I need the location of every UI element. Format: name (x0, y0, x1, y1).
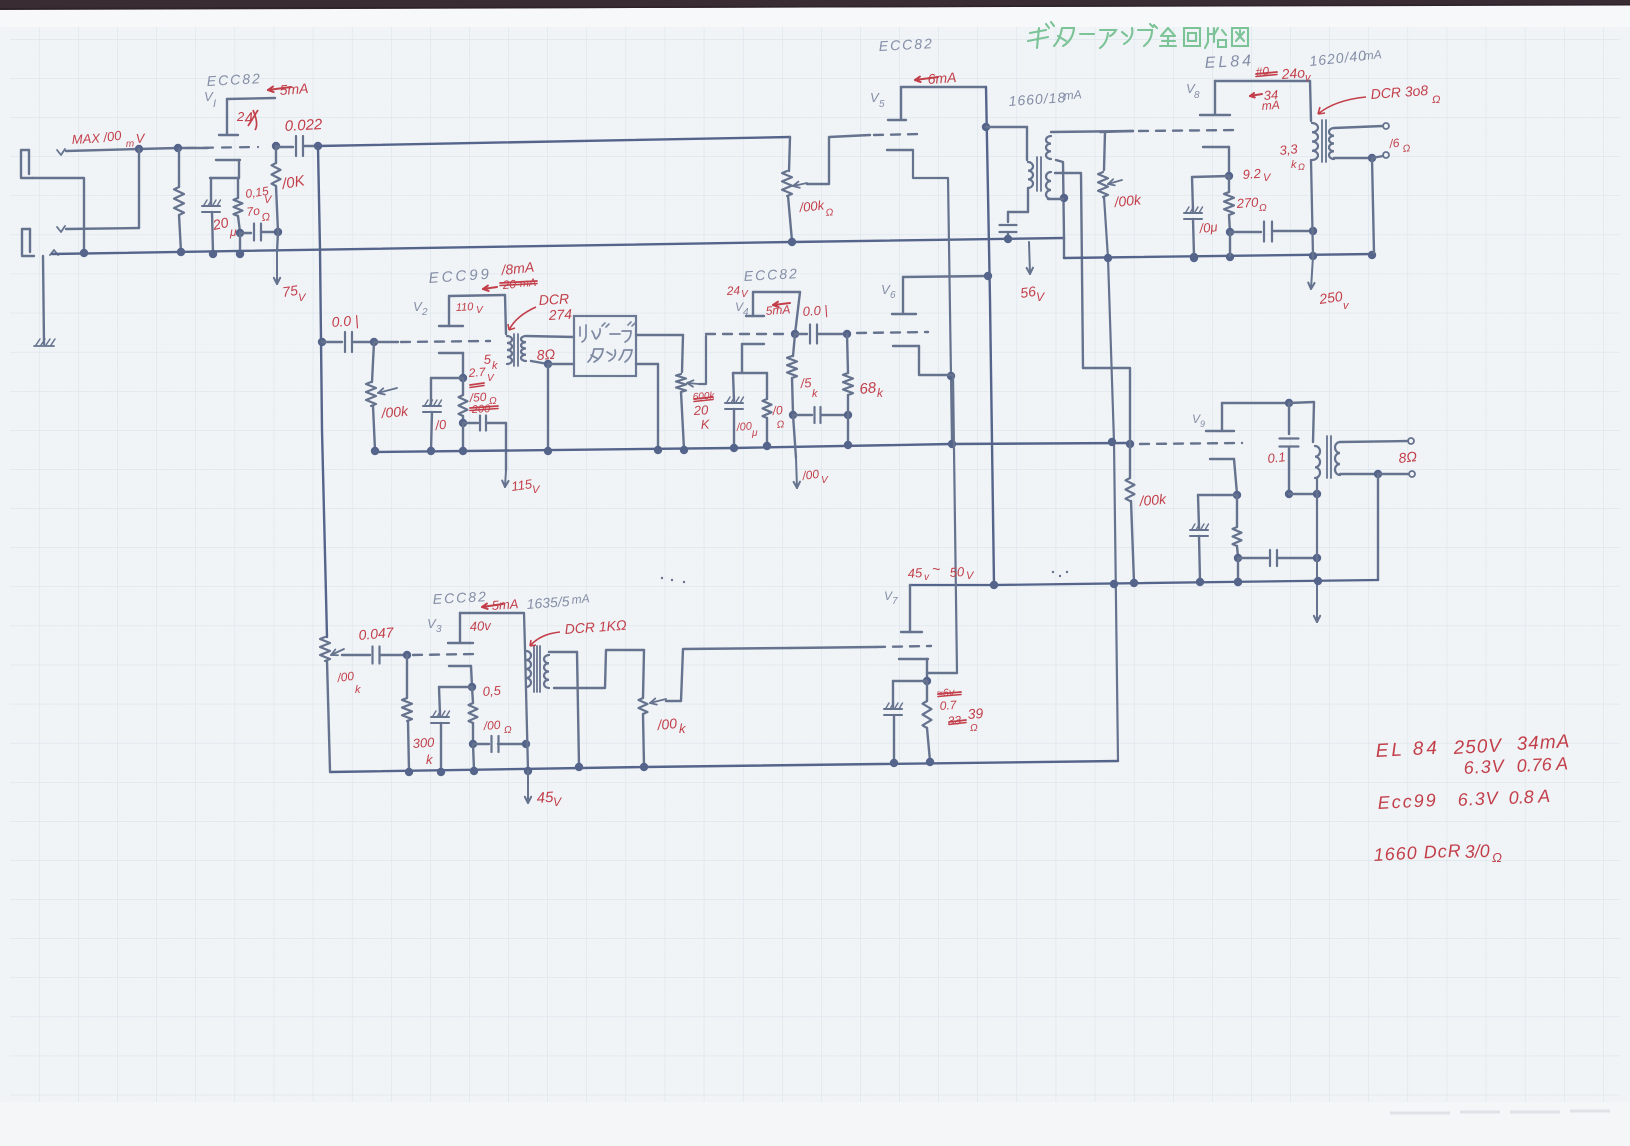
svg-text:7: 7 (892, 596, 898, 607)
svg-text:7o: 7o (246, 204, 261, 219)
svg-text:k: k (355, 684, 361, 696)
svg-text:0.1: 0.1 (1267, 449, 1287, 466)
svg-text:Ecc99: Ecc99 (1377, 790, 1438, 813)
svg-text:3: 3 (436, 624, 442, 635)
svg-text:2: 2 (421, 307, 428, 318)
svg-text:EL 84: EL 84 (1375, 738, 1440, 762)
svg-text:0.76 A: 0.76 A (1516, 753, 1568, 776)
svg-text:k: k (812, 388, 818, 400)
svg-text:0.0 |: 0.0 | (331, 312, 359, 330)
svg-text:56: 56 (1019, 283, 1037, 301)
svg-text:0.0 |: 0.0 | (802, 302, 828, 319)
svg-text:I: I (213, 98, 216, 110)
svg-text:6.3V: 6.3V (1457, 788, 1500, 810)
svg-text:33: 33 (947, 713, 962, 728)
svg-text:5mA: 5mA (279, 80, 309, 98)
svg-text:110: 110 (456, 301, 475, 314)
svg-text:~: ~ (932, 561, 940, 577)
svg-text:39: 39 (967, 705, 984, 722)
svg-text:5mA: 5mA (765, 302, 791, 318)
svg-text:mA: mA (571, 591, 590, 607)
svg-text:75: 75 (281, 282, 299, 300)
svg-text:20: 20 (692, 402, 709, 418)
svg-text:μ: μ (229, 225, 237, 239)
svg-text:274: 274 (547, 306, 572, 323)
svg-text:45: 45 (536, 789, 554, 807)
svg-text:300: 300 (412, 734, 435, 751)
svg-text:μ: μ (751, 428, 758, 439)
svg-text:/00: /00 (656, 715, 678, 733)
svg-text:8Ω: 8Ω (1398, 448, 1418, 466)
svg-text:mA: mA (1363, 47, 1382, 63)
svg-text:8Ω: 8Ω (536, 346, 556, 363)
svg-text:1635/5: 1635/5 (526, 593, 570, 612)
svg-text:250: 250 (1317, 288, 1344, 307)
svg-text:9.2: 9.2 (1242, 166, 1262, 182)
svg-text:4: 4 (743, 307, 749, 318)
svg-text:MAX: MAX (71, 130, 101, 147)
svg-text:3,3: 3,3 (1279, 141, 1299, 158)
svg-text:2.7: 2.7 (467, 365, 487, 380)
svg-text:/00k: /00k (380, 403, 410, 421)
svg-text:0.047: 0.047 (358, 624, 396, 643)
svg-text:/00: /00 (800, 467, 820, 483)
svg-text:mA: mA (1063, 87, 1082, 103)
svg-text:270: 270 (1235, 194, 1259, 211)
svg-text:Ω: Ω (776, 419, 785, 431)
svg-text:Ω: Ω (504, 725, 512, 736)
svg-text:mA: mA (519, 277, 536, 290)
svg-text:5mA: 5mA (491, 596, 519, 613)
svg-text:6.3V: 6.3V (1463, 756, 1506, 778)
svg-text:0.022: 0.022 (284, 116, 323, 135)
svg-text:50: 50 (949, 564, 965, 580)
svg-text:24: 24 (725, 283, 740, 298)
svg-text:Ω: Ω (261, 211, 271, 224)
svg-text:Ω: Ω (1492, 850, 1502, 865)
svg-text:0.7: 0.7 (939, 698, 958, 713)
svg-text:34mA: 34mA (1516, 731, 1571, 755)
svg-text:k: k (1291, 159, 1297, 171)
svg-text:k: k (877, 386, 884, 400)
svg-text:200: 200 (471, 403, 492, 416)
svg-text:#0: #0 (1255, 64, 1270, 79)
svg-text:24o: 24o (1280, 64, 1306, 82)
svg-text:115: 115 (510, 476, 533, 494)
svg-text:ECC82: ECC82 (206, 70, 262, 89)
svg-text:3/0: 3/0 (1464, 841, 1490, 862)
svg-text:68: 68 (859, 379, 878, 398)
svg-text:mA: mA (1261, 98, 1280, 113)
svg-text:Ω: Ω (825, 207, 834, 219)
svg-text:ECC82: ECC82 (743, 265, 799, 284)
svg-text:6: 6 (890, 290, 896, 301)
svg-text:/00k: /00k (798, 197, 826, 215)
svg-text:Ω: Ω (1432, 94, 1440, 106)
svg-text:Ω: Ω (970, 723, 978, 734)
svg-text:V: V (1036, 290, 1045, 304)
svg-text:0,5: 0,5 (482, 683, 502, 699)
svg-text:m: m (126, 139, 135, 150)
svg-text:0.8 A: 0.8 A (1508, 786, 1550, 808)
svg-text:EL84: EL84 (1204, 52, 1254, 72)
svg-text:/00: /00 (101, 127, 123, 145)
svg-text:45: 45 (907, 565, 923, 581)
svg-text:20: 20 (210, 214, 230, 233)
svg-text:k: k (492, 360, 498, 372)
svg-text:600k: 600k (692, 390, 715, 403)
svg-text:Ω: Ω (1298, 162, 1305, 172)
svg-text:40v: 40v (469, 618, 492, 634)
svg-text:Ω: Ω (1259, 203, 1267, 214)
svg-text:/0μ: /0μ (1198, 219, 1218, 236)
svg-text:/00k: /00k (1138, 491, 1168, 509)
svg-text:9: 9 (1200, 419, 1205, 429)
svg-text:/00: /00 (335, 669, 355, 685)
svg-text:8: 8 (1194, 90, 1200, 101)
svg-text:/00k: /00k (1113, 191, 1143, 210)
svg-text:/00: /00 (735, 420, 753, 434)
svg-text:/00: /00 (482, 718, 501, 733)
svg-text:20: 20 (501, 277, 517, 292)
svg-text:5: 5 (879, 99, 885, 110)
svg-text:/0: /0 (771, 403, 784, 418)
svg-text:/5: /5 (799, 375, 813, 391)
svg-text:/6: /6 (1387, 136, 1400, 151)
svg-text:V: V (553, 795, 562, 809)
svg-text:6mA: 6mA (927, 69, 957, 87)
svg-text:ECC82: ECC82 (878, 35, 934, 54)
svg-text:Ω: Ω (1402, 143, 1411, 155)
svg-text:ECC82: ECC82 (432, 588, 488, 607)
